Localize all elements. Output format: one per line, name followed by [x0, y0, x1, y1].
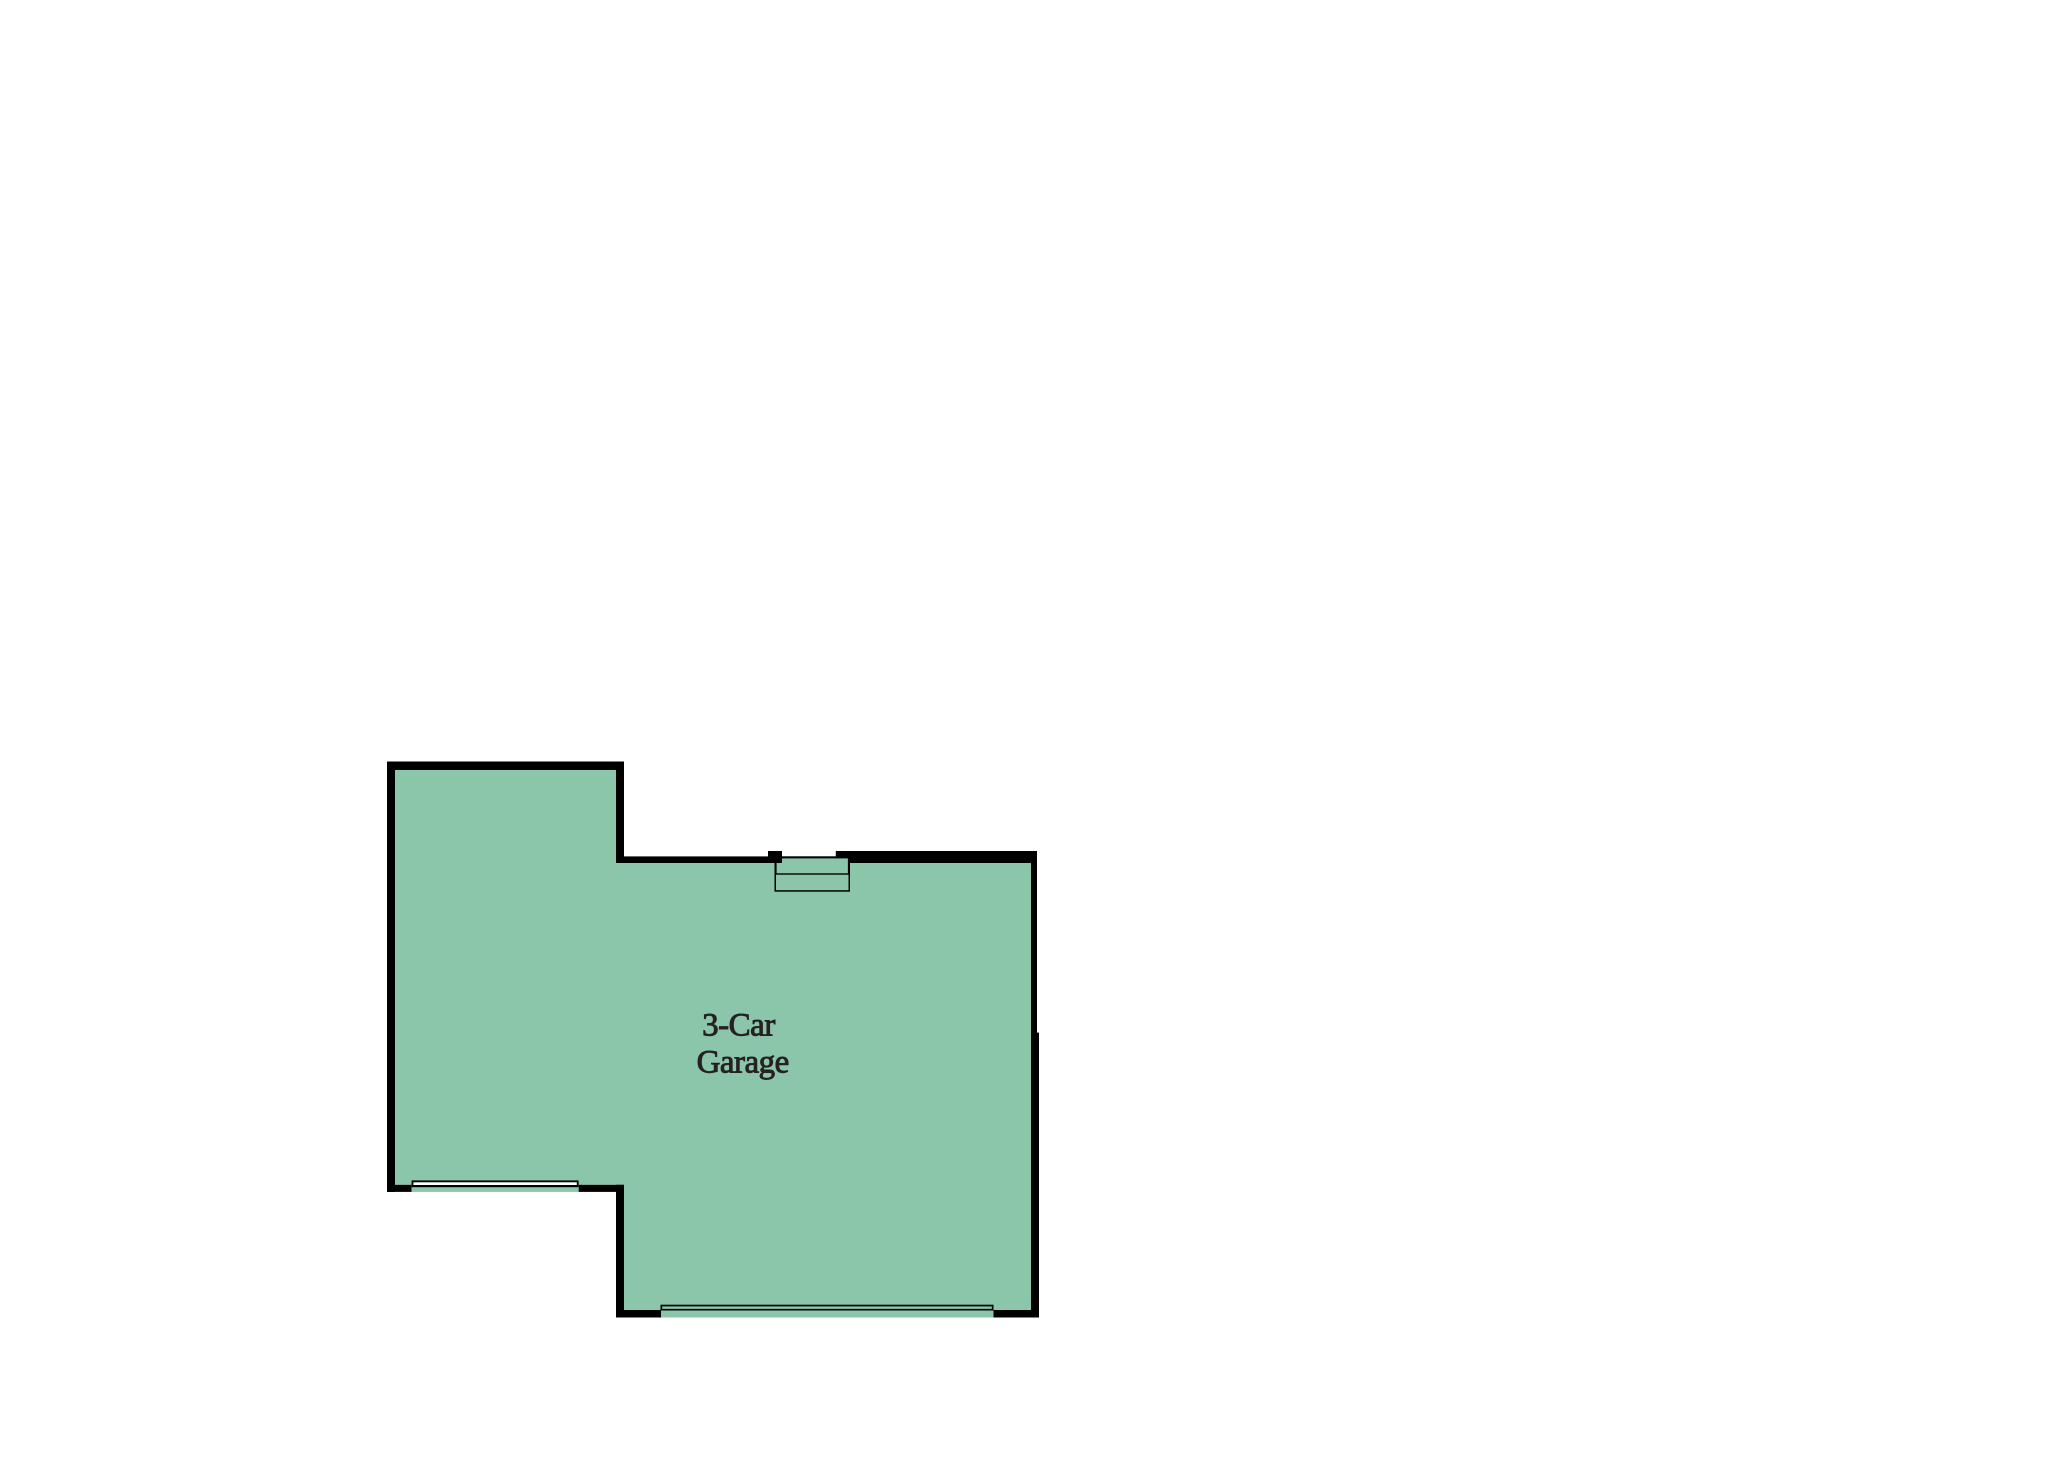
svg-text:Garage: Garage [697, 1045, 789, 1081]
svg-text:3-Car: 3-Car [702, 1007, 775, 1043]
